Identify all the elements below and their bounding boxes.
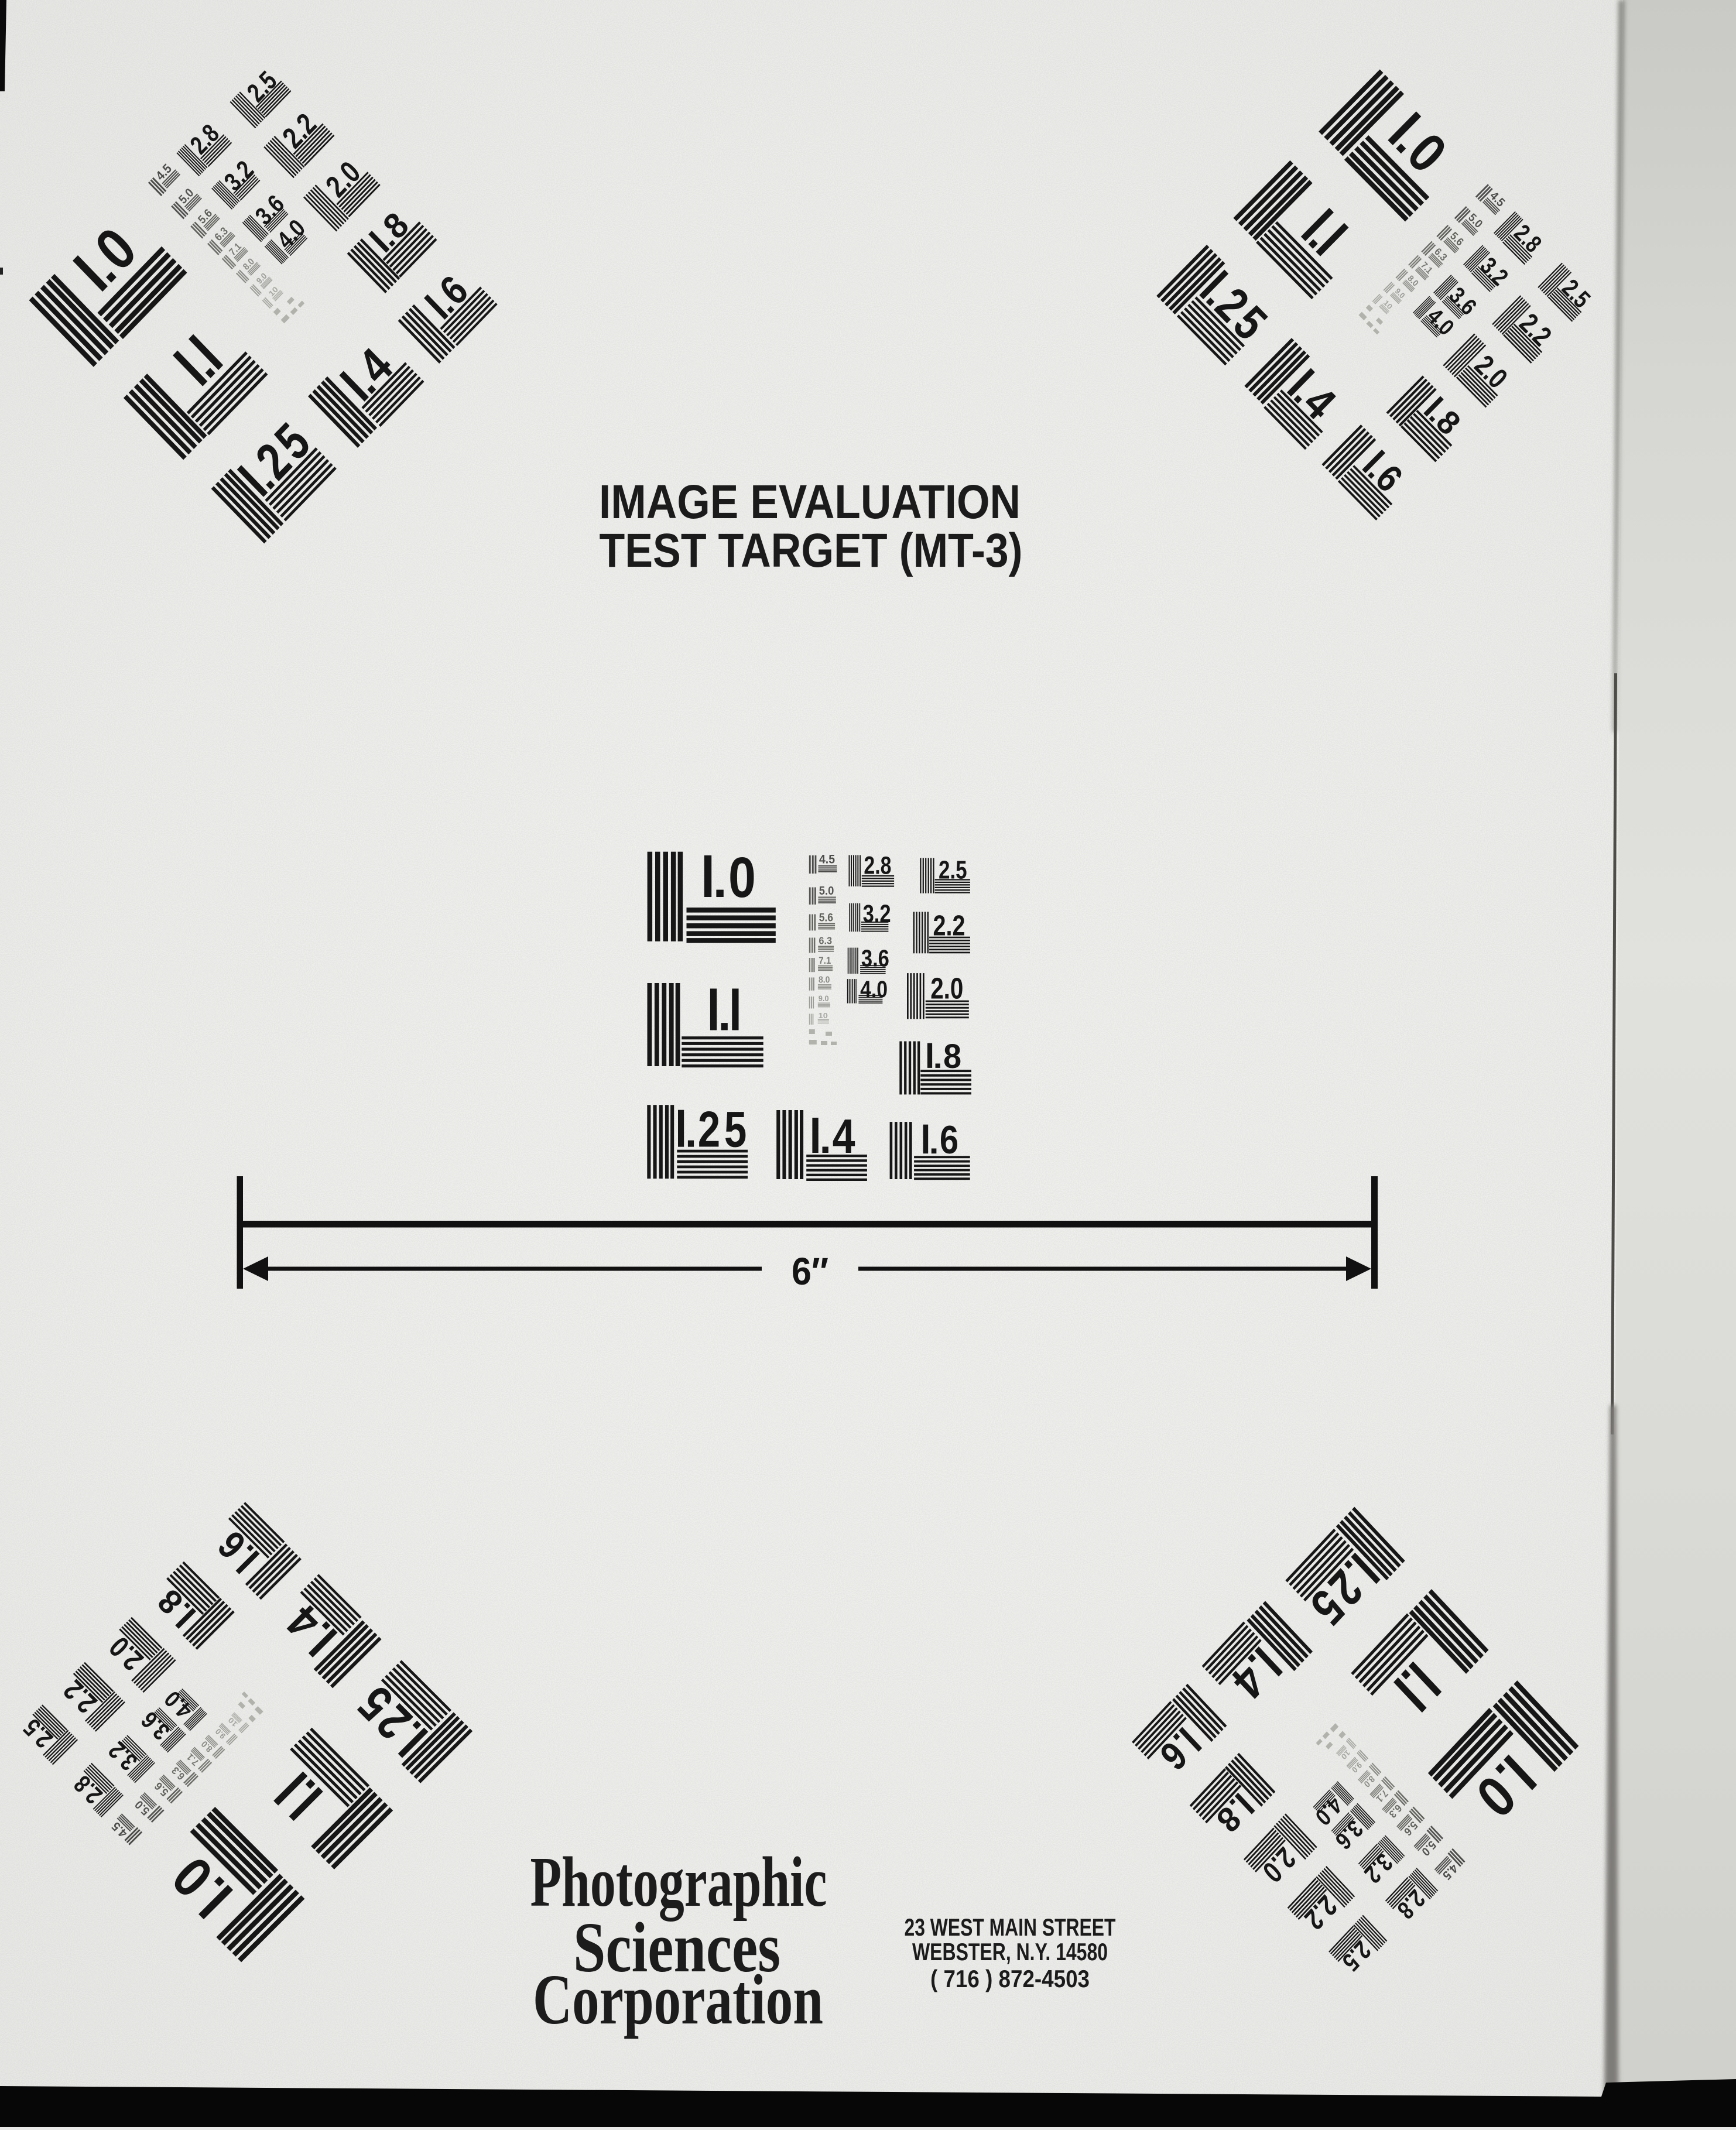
svg-text:( 716 ) 872-4503: ( 716 ) 872-4503 <box>930 1965 1090 1992</box>
svg-text:6″: 6″ <box>792 1249 828 1293</box>
svg-text:23 WEST MAIN STREET: 23 WEST MAIN STREET <box>905 1913 1116 1941</box>
svg-text:TEST TARGET (MT-3): TEST TARGET (MT-3) <box>600 524 1023 577</box>
svg-text:WEBSTER, N.Y. 14580: WEBSTER, N.Y. 14580 <box>912 1938 1108 1965</box>
svg-text:IMAGE EVALUATION: IMAGE EVALUATION <box>599 475 1021 529</box>
svg-text:Corporation: Corporation <box>533 1960 823 2039</box>
